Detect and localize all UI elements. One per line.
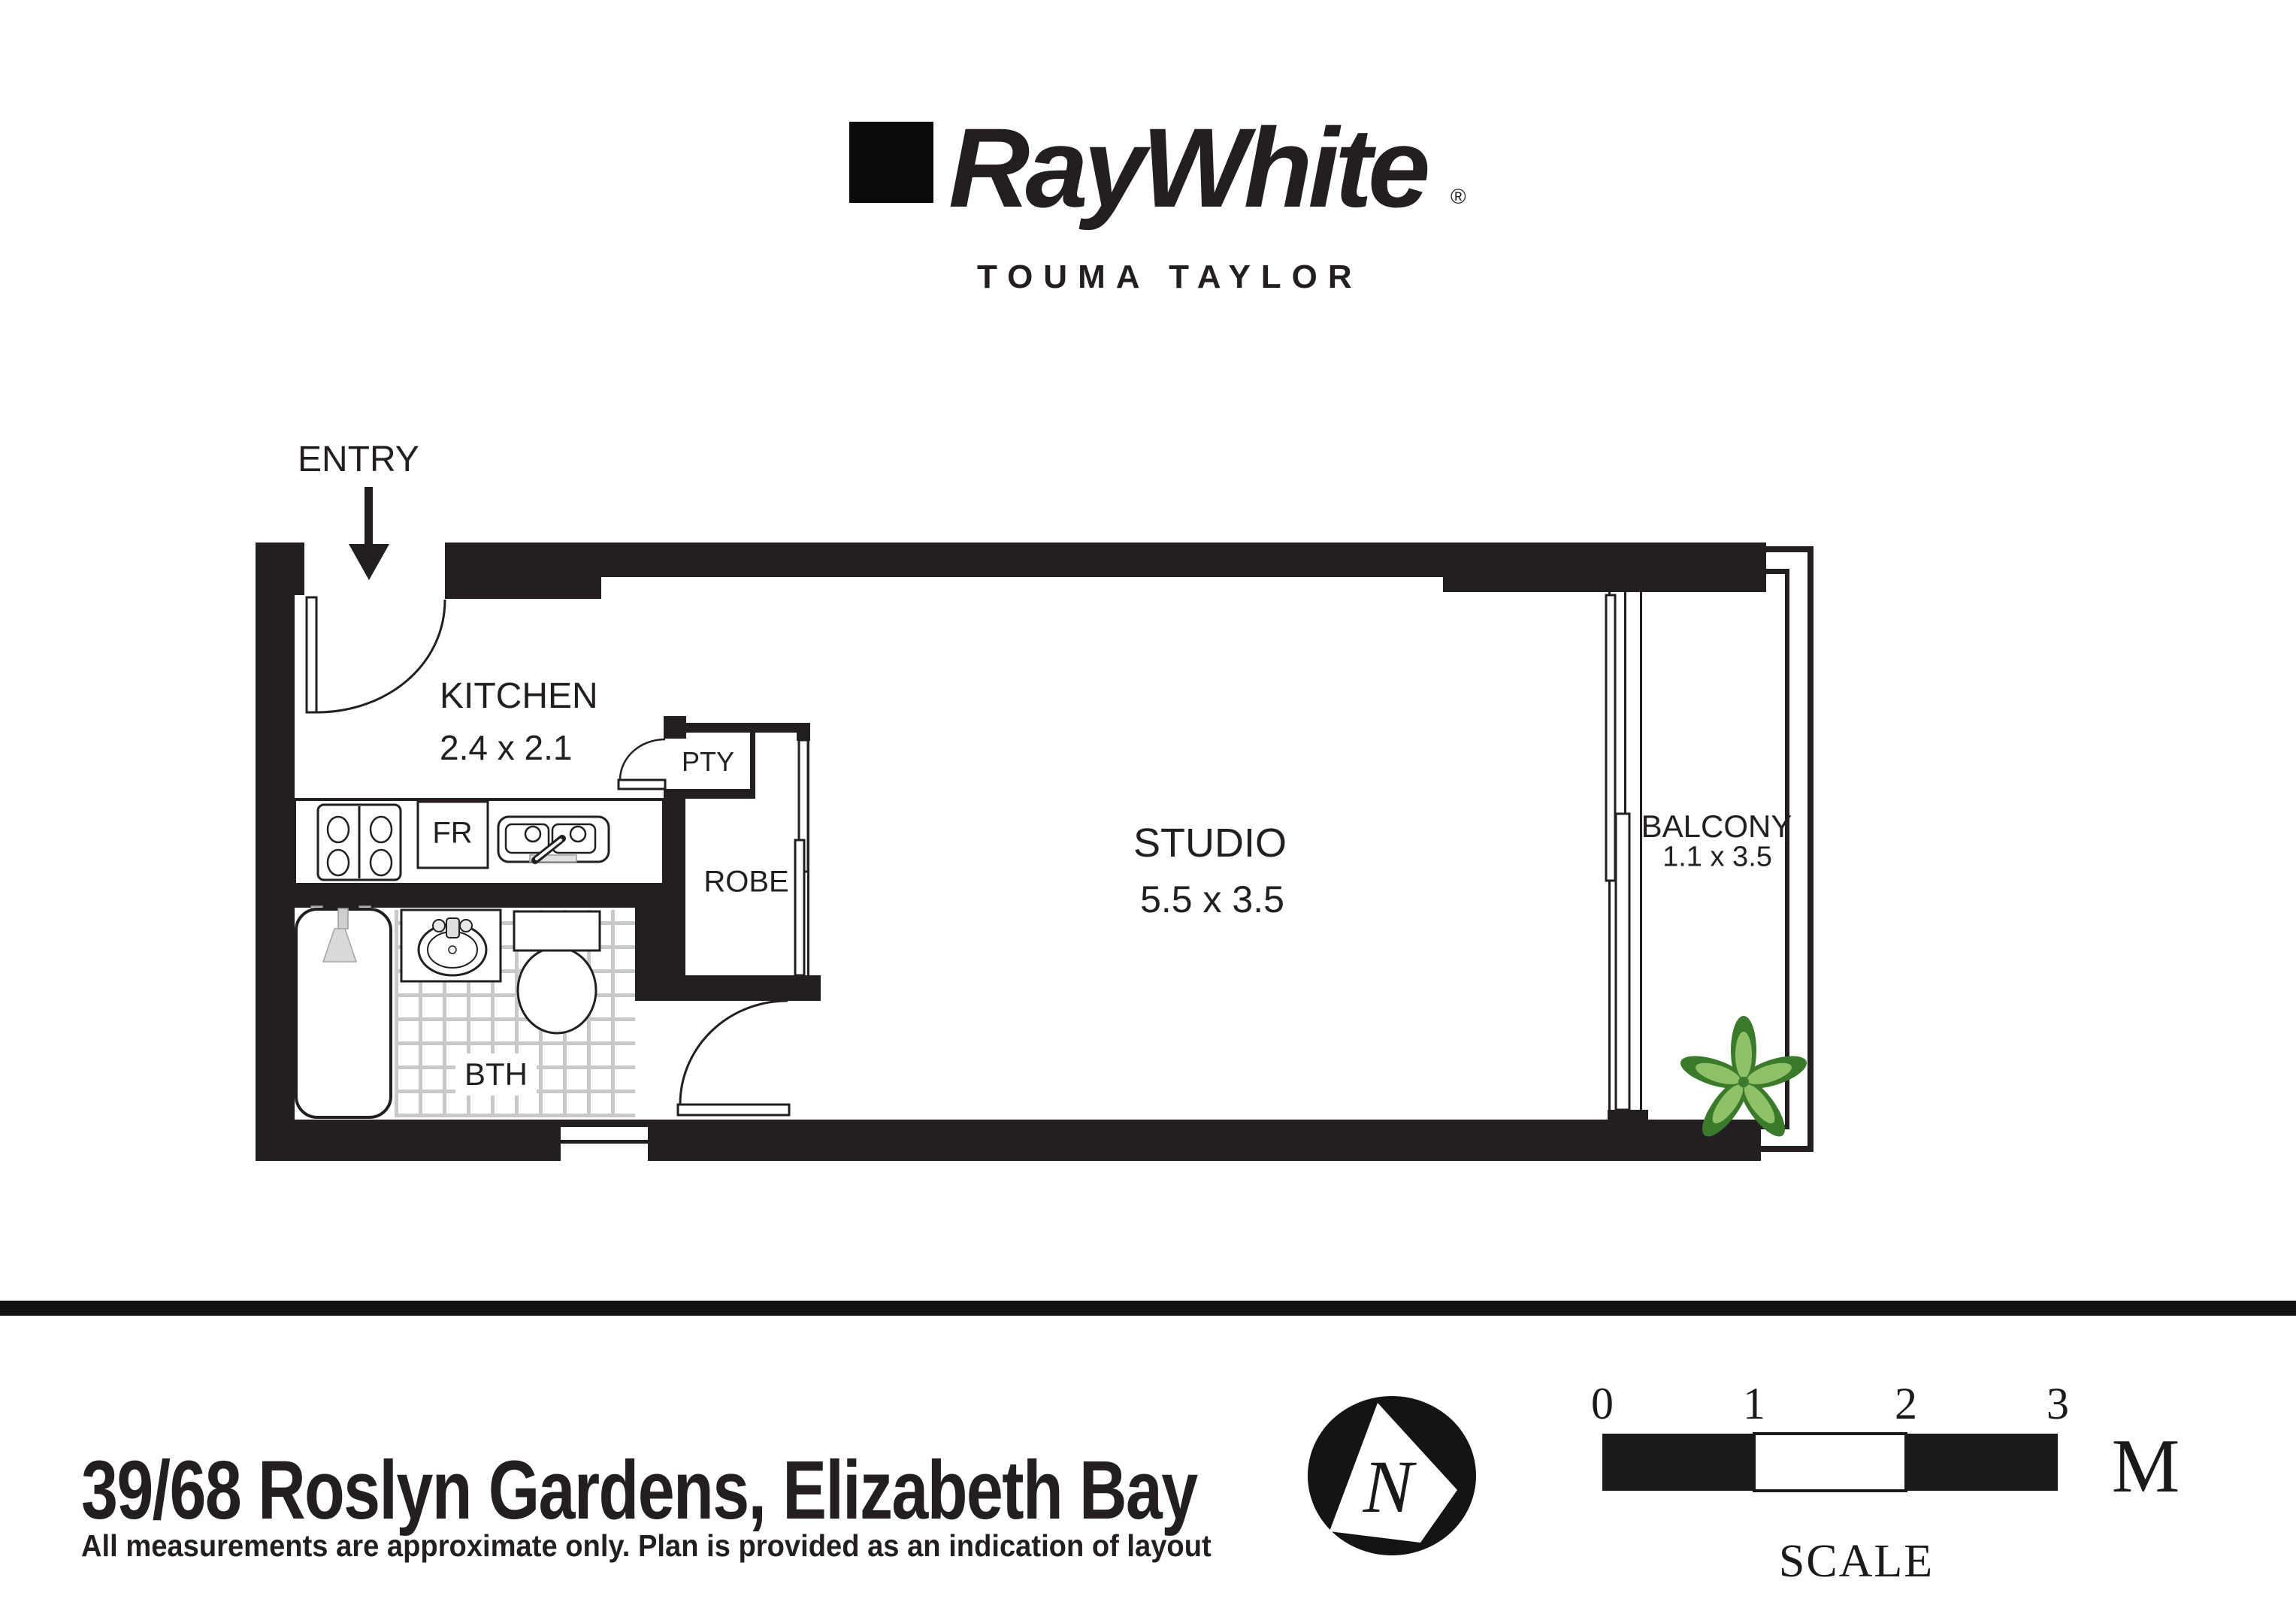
pantry-label: PTY	[682, 746, 734, 778]
raywhite-logo-square-icon	[849, 122, 933, 203]
studio-dimensions: 5.5 x 3.5	[1140, 878, 1284, 921]
entry-arrow-icon	[349, 487, 389, 580]
registered-trademark: ®	[1451, 185, 1466, 209]
scale-tick-0: 0	[1591, 1379, 1614, 1428]
scale-unit: M	[2112, 1424, 2180, 1509]
bathroom-fixtures	[296, 906, 600, 1117]
bathroom-label: BTH	[455, 1053, 537, 1096]
entry-label: ENTRY	[298, 439, 419, 480]
footer-separator	[0, 1301, 2296, 1316]
entry-door	[307, 597, 445, 712]
robe-label: ROBE	[703, 866, 788, 899]
office-name: TOUMA TAYLOR	[977, 258, 1363, 296]
north-label: N	[1363, 1445, 1417, 1528]
balcony-dimensions: 1.1 x 3.5	[1662, 842, 1772, 874]
bottom-wall-window	[561, 1127, 648, 1161]
sink-icon	[498, 817, 609, 862]
balcony-sliding-door	[1606, 592, 1642, 1111]
floorplan-drawing: N 0 1 2 3 M SCALE	[0, 0, 2296, 1623]
bathtub-icon	[296, 906, 391, 1117]
stove-icon	[318, 805, 401, 880]
toilet-icon	[514, 911, 600, 1033]
pantry-door	[619, 739, 665, 789]
scale-bar: 0 1 2 3 M SCALE	[1591, 1379, 2180, 1587]
north-compass-icon: N	[1308, 1396, 1476, 1555]
property-address: 39/68 Roslyn Gardens, Elizabeth Bay	[81, 1443, 1197, 1538]
basin-icon	[401, 910, 501, 981]
robe-sliding-door	[795, 740, 809, 975]
scale-caption: SCALE	[1779, 1536, 1934, 1587]
balcony-label: BALCONY	[1641, 808, 1792, 845]
raywhite-wordmark: RayWhite	[948, 111, 1426, 224]
kitchen-dimensions: 2.4 x 2.1	[440, 727, 572, 768]
kitchen-label: KITCHEN	[440, 675, 598, 717]
fridge-label: FR	[432, 817, 472, 851]
scale-tick-2: 2	[1895, 1379, 1917, 1428]
bathroom-door	[678, 1001, 789, 1115]
scale-tick-3: 3	[2046, 1379, 2069, 1428]
disclaimer-text: All measurements are approximate only. P…	[81, 1528, 1212, 1564]
floorplan-page: N 0 1 2 3 M SCALE RayWhite ® TOUMA TAYLO…	[0, 0, 2296, 1623]
studio-label: STUDIO	[1133, 820, 1287, 866]
kitchen-bench	[295, 799, 664, 884]
scale-tick-1: 1	[1743, 1379, 1765, 1428]
